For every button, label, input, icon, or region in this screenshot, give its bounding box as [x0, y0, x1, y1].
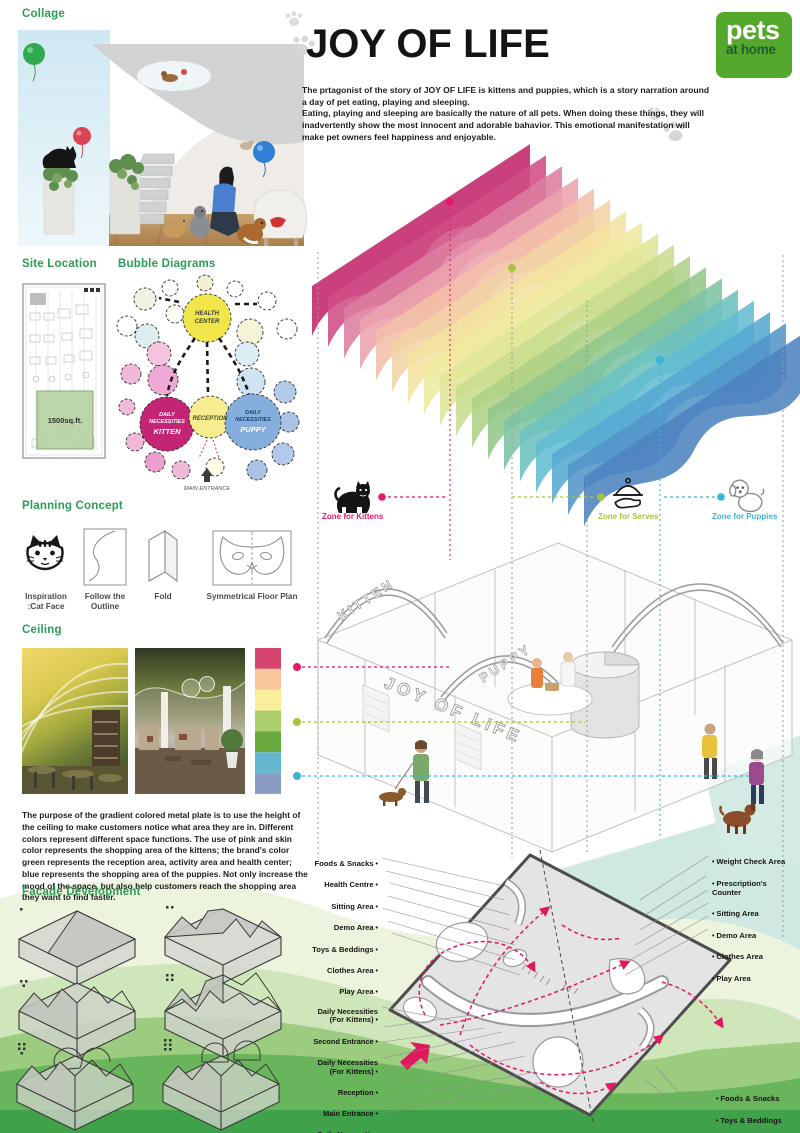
palette-swatch — [255, 669, 281, 690]
bubble-label: PUPPY — [240, 425, 266, 434]
plan-label: Clothes Area — [280, 967, 378, 976]
zone-puppies-label: Zone for Puppies — [712, 512, 777, 521]
plan-label: Main Entrance — [268, 1110, 378, 1119]
plan-label: Play Area — [280, 988, 378, 997]
page-title: JOY OF LIFE — [306, 22, 550, 67]
plan-label: Toys & Beddings — [716, 1117, 800, 1126]
main-entrance-label: MAIN ENTRANCE — [184, 486, 231, 492]
palette-dot-blue — [293, 772, 301, 780]
zone-kittens-label: Zone for Kittens — [322, 512, 383, 521]
plan-label: Weight Check Area — [712, 858, 800, 867]
entrance-arrow — [400, 1042, 430, 1070]
puppy-icon — [728, 477, 764, 513]
bubble-label: DAILY — [245, 410, 261, 416]
brand-logo: pets at home — [716, 12, 792, 78]
bubble-label: KITTEN — [153, 427, 181, 436]
bubble-label: RECEPTION — [192, 416, 228, 422]
plan-label: Health Centre — [280, 881, 378, 890]
plan-label: Prescription's Counter — [712, 880, 800, 898]
intro-paragraph-2: Eating, playing and sleeping are basical… — [302, 107, 714, 144]
site-plan: 1500sq.ft. — [22, 283, 106, 459]
concept-label-fold: Fold — [142, 592, 184, 602]
plan-label: Sitting Area — [712, 910, 800, 919]
ceiling-photo-2 — [135, 648, 245, 794]
plan-labels-bottom-right: Foods & Snacks Toys & Beddings — [716, 1086, 800, 1133]
collage-image — [14, 24, 304, 246]
plan-label: Demo Area — [280, 924, 378, 933]
ceiling-ribbons — [300, 118, 800, 538]
bubble-label: NECESSITIES — [235, 417, 271, 423]
facade-sketch-6 — [160, 1036, 285, 1130]
plan-label: Clothes Area — [712, 953, 800, 962]
site-area-label: 1500sq.ft. — [48, 416, 83, 425]
plan-label: Daily Necessities (For Kittens) — [268, 1008, 378, 1026]
cat-icon — [333, 480, 373, 516]
palette-swatch — [255, 648, 281, 669]
logo-word-at-home: at home — [726, 42, 792, 57]
palette-swatch — [255, 773, 281, 794]
plan-labels-left: Foods & Snacks Health Centre Sitting Are… — [280, 851, 378, 1010]
palette-dot-green — [293, 718, 301, 726]
fold-icon — [143, 528, 183, 586]
facade-sketch-1 — [16, 905, 141, 985]
red-ball — [181, 69, 187, 75]
ceiling-photo-1 — [22, 648, 128, 794]
facade-development-heading: Facade Development — [22, 886, 141, 898]
bubble-label: CENTER — [195, 319, 220, 325]
axonometric-drawing: KITTEN PUPPY JOY OF LIFE — [305, 535, 800, 865]
intro-paragraph-1: The prtagonist of the story of JOY OF LI… — [302, 84, 714, 108]
concept-label-outline: Follow the Outline — [75, 592, 135, 613]
bubble-label: DAILY — [159, 412, 175, 418]
plan-label: Foods & Snacks — [716, 1095, 800, 1104]
zone-serves-label: Zone for Serves — [598, 512, 658, 521]
plan-labels-bottom-left: Daily Necessities (For Kittens) Second E… — [268, 999, 378, 1133]
bubble-diagrams-heading: Bubble Diagrams — [118, 258, 216, 270]
ceiling-palette — [255, 648, 281, 794]
plan-label: Sitting Area — [280, 903, 378, 912]
plan-label: Second Entrance — [268, 1038, 378, 1047]
plan-label: Reception — [268, 1089, 378, 1098]
facade-sketch-5 — [14, 1040, 139, 1130]
plan-label: Daily Necessities (For Kittens) — [268, 1059, 378, 1077]
bubble-label: NECESSITIES — [149, 419, 185, 425]
ceiling-heading: Ceiling — [22, 624, 62, 636]
palette-swatch — [255, 711, 281, 732]
collage-heading: Collage — [22, 8, 65, 20]
paw-icon — [284, 10, 304, 28]
bubble-label: HEALTH — [195, 311, 220, 317]
palette-swatch — [255, 690, 281, 711]
bubble-diagram: HEALTH CENTER RECEPTION DAILY NECESSITIE… — [115, 274, 305, 492]
cat-face-icon — [24, 534, 66, 572]
serving-dish-icon — [612, 477, 644, 513]
plan-labels-right: Weight Check Area Prescription's Counter… — [712, 849, 800, 996]
site-location-heading: Site Location — [22, 258, 97, 270]
concept-label-inspiration: Inspiration :Cat Face — [16, 592, 76, 613]
bubble-health-center — [183, 294, 231, 342]
concept-label-symmetrical: Symmetrical Floor Plan — [196, 592, 308, 602]
plan-label: Toys & Beddings — [280, 946, 378, 955]
plan-label: Play Area — [712, 975, 800, 984]
planning-concept-heading: Planning Concept — [22, 500, 123, 512]
poster: Collage — [0, 0, 800, 1133]
palette-swatch — [255, 752, 281, 773]
plan-label: Foods & Snacks — [280, 860, 378, 869]
symmetrical-plan-icon — [212, 530, 292, 586]
logo-word-pets: pets — [726, 19, 792, 42]
plan-label: Demo Area — [712, 932, 800, 941]
follow-outline-icon — [83, 528, 127, 586]
palette-swatch — [255, 731, 281, 752]
palette-dot-pink — [293, 663, 301, 671]
